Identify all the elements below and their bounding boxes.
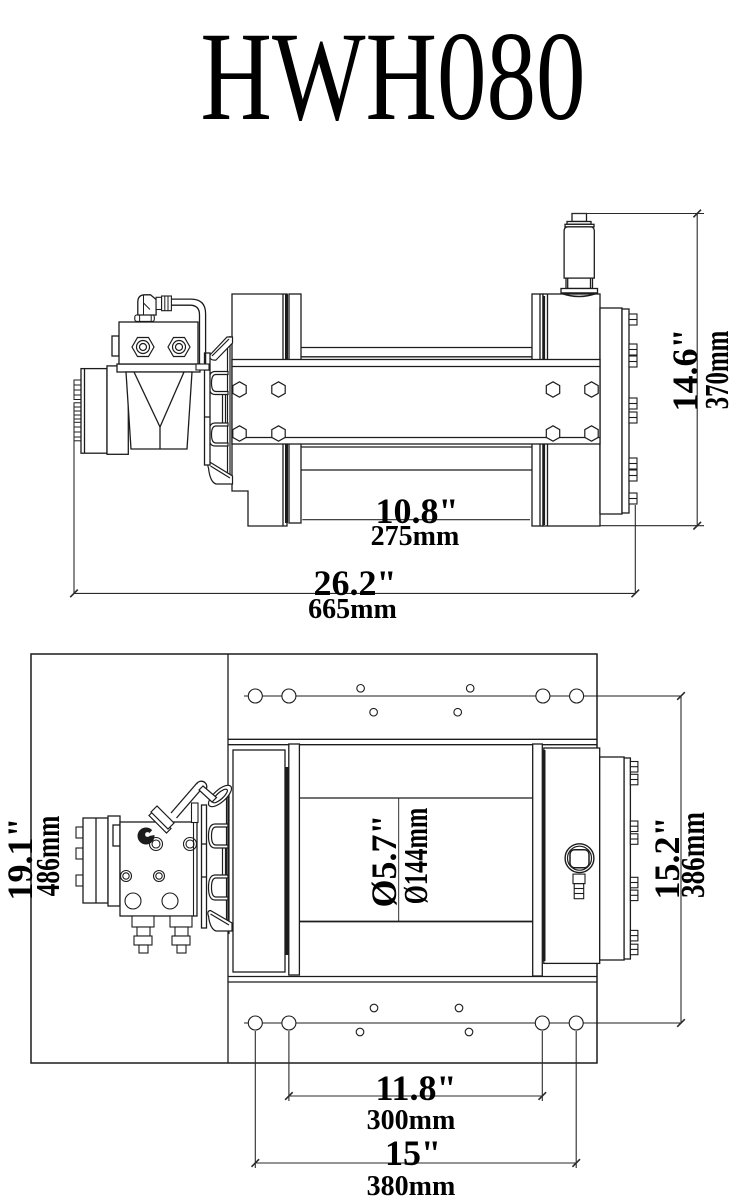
- svg-text:386mm: 386mm: [674, 812, 712, 898]
- svg-text:486mm: 486mm: [28, 816, 66, 897]
- svg-text:15": 15": [385, 1133, 441, 1173]
- svg-text:11.8": 11.8": [376, 1068, 457, 1108]
- svg-text:665mm: 665mm: [308, 594, 397, 625]
- svg-text:Ø144mm: Ø144mm: [398, 807, 435, 904]
- svg-text:370mm: 370mm: [698, 331, 736, 410]
- svg-text:380mm: 380mm: [367, 1171, 456, 1200]
- svg-text:275mm: 275mm: [371, 521, 460, 552]
- svg-text:HWH080: HWH080: [200, 6, 585, 147]
- svg-text:300mm: 300mm: [367, 1105, 456, 1136]
